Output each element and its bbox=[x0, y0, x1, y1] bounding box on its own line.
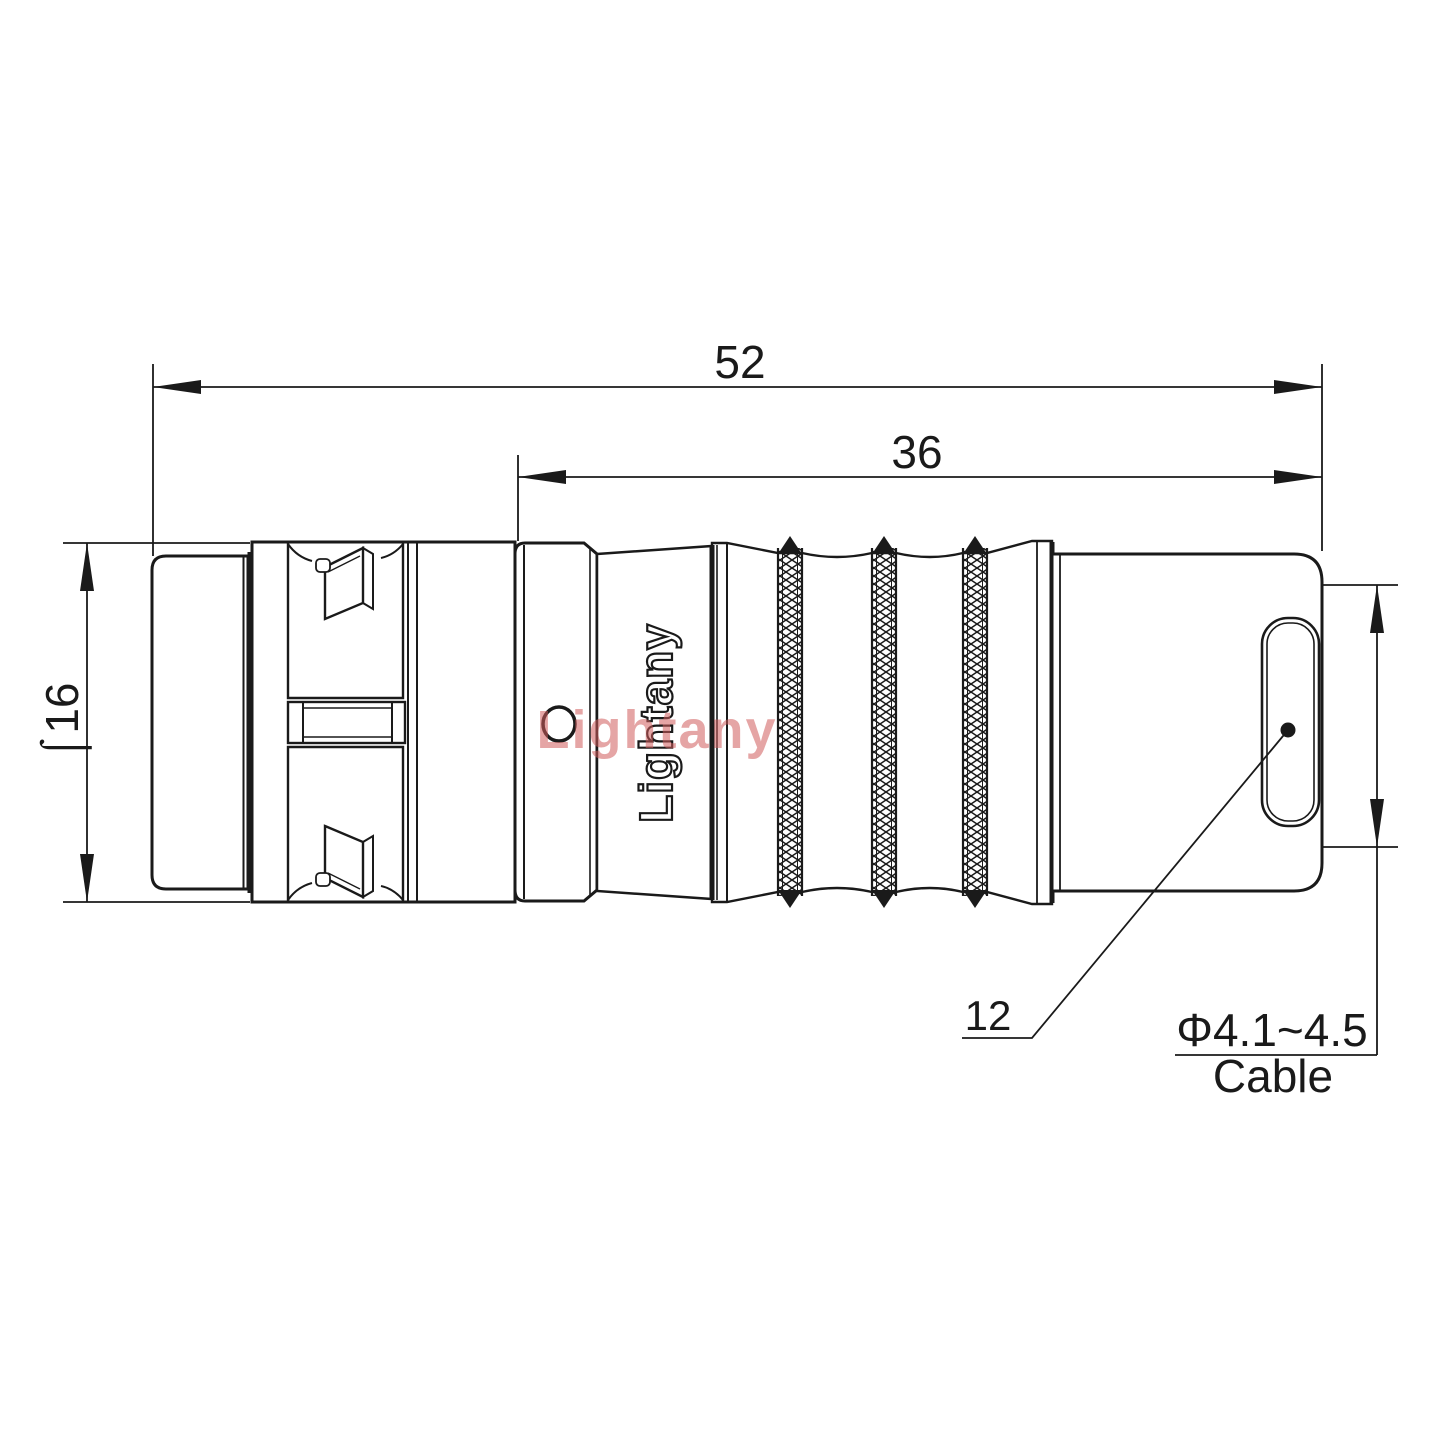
cable-diameter-label: Φ4.1~4.5 bbox=[1176, 1004, 1367, 1056]
ref-12-label: 12 bbox=[965, 992, 1012, 1039]
watermark-text: Lightany bbox=[537, 700, 778, 760]
latch-pivot-top bbox=[316, 559, 330, 572]
dim-body-diameter-label: ⌠16 bbox=[36, 683, 92, 762]
latch-flap-bottom-side bbox=[363, 836, 373, 897]
dim-rear-length: 36 bbox=[518, 426, 1322, 541]
dim-overall-length-label: 52 bbox=[714, 336, 765, 388]
rear-shell-section bbox=[1052, 554, 1322, 891]
dim-overall-length: 52 bbox=[153, 336, 1322, 556]
dim-rear-length-label: 36 bbox=[891, 426, 942, 478]
latch-shell-section bbox=[252, 542, 515, 902]
technical-drawing-page: Lightany bbox=[0, 0, 1440, 1440]
latch-center-slot bbox=[288, 702, 405, 743]
latch-flap-top-side bbox=[363, 548, 373, 609]
front-nose-section bbox=[152, 552, 250, 893]
connector-technical-drawing: Lightany bbox=[0, 0, 1440, 1440]
latch-pivot-bottom bbox=[316, 873, 330, 886]
cable-window-outer bbox=[1262, 618, 1319, 826]
cable-word-label: Cable bbox=[1213, 1050, 1333, 1102]
